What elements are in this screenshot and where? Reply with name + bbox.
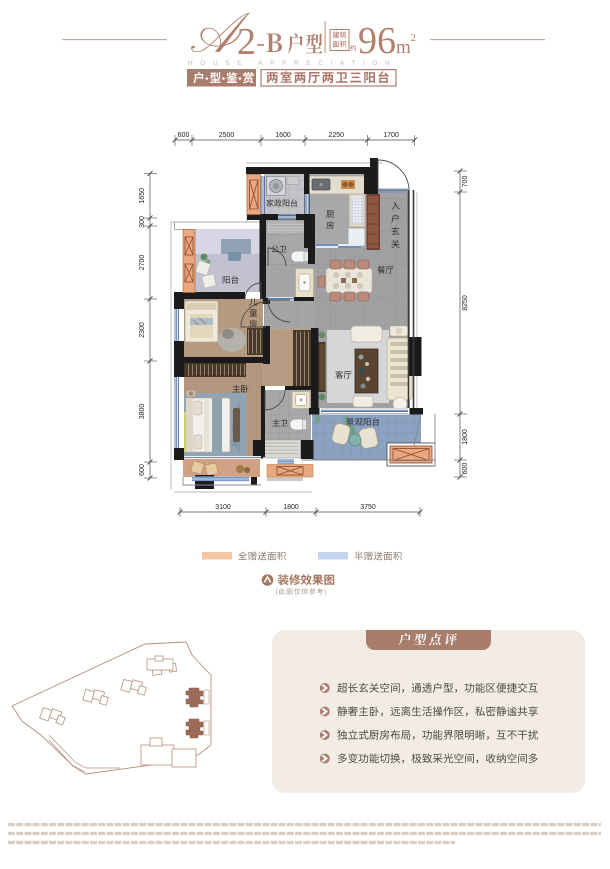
svg-text:1700: 1700 <box>383 132 399 139</box>
svg-text:1800: 1800 <box>462 429 469 445</box>
svg-text:3750: 3750 <box>360 504 376 511</box>
svg-text:600: 600 <box>178 132 190 139</box>
svg-text:8250: 8250 <box>462 295 469 311</box>
svg-text:3800: 3800 <box>139 404 146 420</box>
svg-text:600: 600 <box>462 463 469 475</box>
svg-text:HOUSE APPRECIATION: HOUSE APPRECIATION <box>188 60 397 67</box>
svg-text:700: 700 <box>462 176 469 188</box>
svg-text:2300: 2300 <box>139 322 146 338</box>
svg-text:2: 2 <box>411 32 417 44</box>
svg-text:2250: 2250 <box>328 132 344 139</box>
svg-text:3100: 3100 <box>215 504 231 511</box>
svg-text:600: 600 <box>139 464 146 476</box>
svg-text:2: 2 <box>237 21 256 63</box>
svg-text:2500: 2500 <box>219 132 235 139</box>
svg-text:96: 96 <box>358 20 396 62</box>
svg-text:1800: 1800 <box>283 504 299 511</box>
svg-text:2700: 2700 <box>139 255 146 271</box>
svg-text:1650: 1650 <box>139 188 146 204</box>
svg-text:300: 300 <box>139 216 146 228</box>
svg-text:m: m <box>396 37 411 58</box>
svg-text:1600: 1600 <box>275 132 291 139</box>
